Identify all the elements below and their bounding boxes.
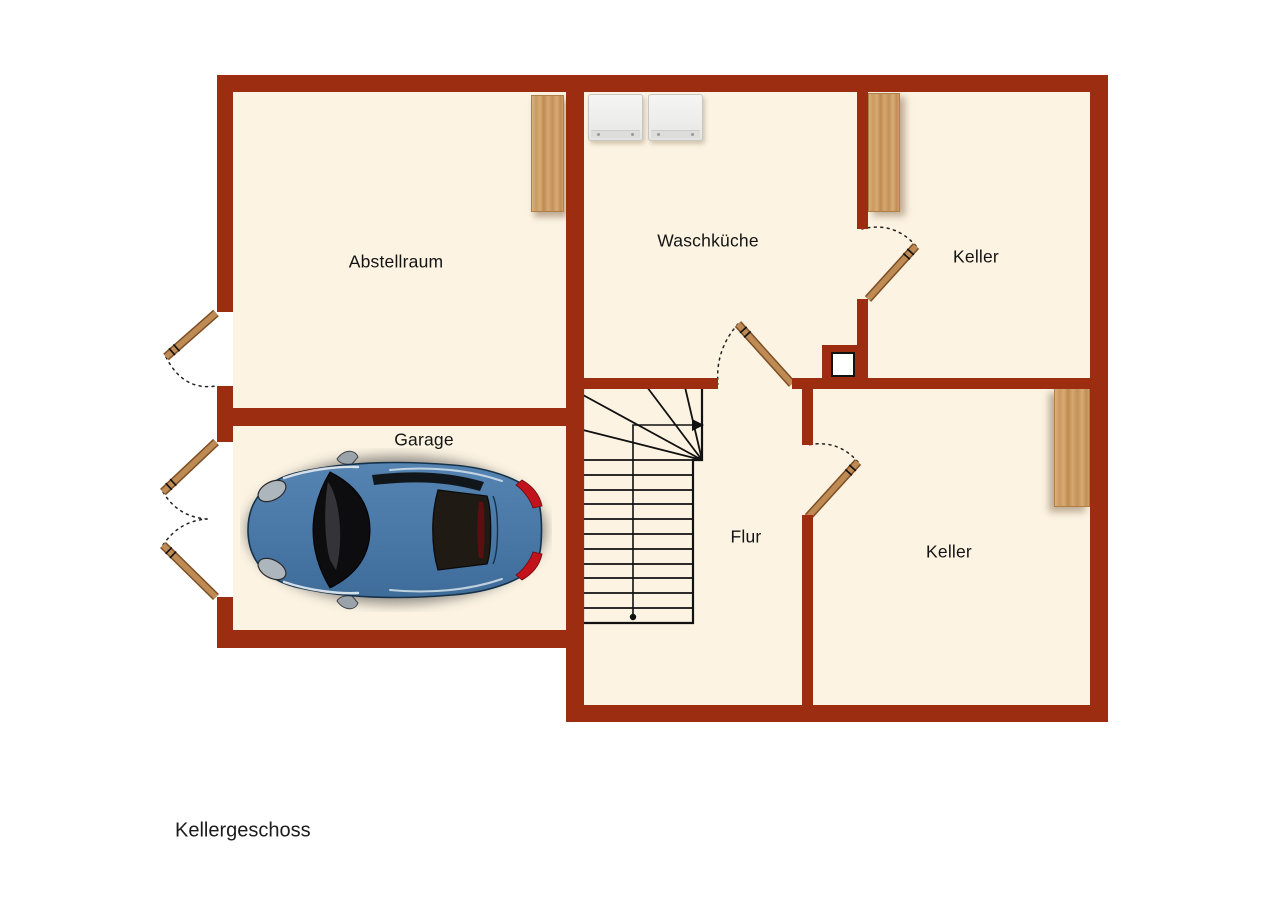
door-leaf [163, 442, 216, 492]
room-label-abstellraum: Abstellraum [349, 252, 444, 273]
washer-knob [597, 133, 600, 136]
door-leaf [163, 545, 216, 597]
door-leaf [166, 313, 216, 357]
door-leaf-edge [163, 545, 216, 597]
wooden-shelf [531, 95, 564, 212]
room-label-waschkueche: Waschküche [657, 231, 759, 252]
door-arc [166, 357, 216, 387]
washer-knob [691, 133, 694, 136]
wall-flur-keller [802, 389, 813, 445]
washer-knob [657, 133, 660, 136]
door-arc [163, 519, 207, 545]
washer-knob [631, 133, 634, 136]
door-arc [163, 492, 207, 519]
wall-central-vertical [566, 92, 584, 705]
basement-floorplan: Abstellraum Waschküche Keller Garage Flu… [0, 0, 1280, 905]
room-label-keller-bottom: Keller [926, 542, 972, 563]
washing-machine [648, 94, 703, 141]
car-top-view [240, 448, 552, 612]
door-leaf-edge [163, 442, 216, 492]
wall-exterior-left [217, 386, 233, 442]
wall-abstellraum-garage [233, 408, 566, 426]
wooden-shelf [868, 93, 900, 212]
door-leaf-edge [166, 313, 216, 357]
car-illustration [240, 448, 552, 612]
room-label-garage: Garage [394, 430, 454, 451]
wall-flur-keller [802, 515, 813, 705]
wall-waschkueche-keller [857, 299, 868, 389]
wooden-shelf [1054, 388, 1090, 507]
wall-garage-bottom [217, 630, 584, 648]
floorplan-page: Abstellraum Waschküche Keller Garage Flu… [0, 0, 1280, 905]
wall-exterior-right [1090, 75, 1108, 722]
wall-exterior-left [217, 92, 233, 312]
wall-exterior-top [217, 75, 1108, 92]
room-label-flur: Flur [731, 527, 762, 548]
wall-waschkueche-flur [584, 378, 718, 389]
chimney-flue [831, 352, 855, 377]
wall-waschkueche-keller [857, 92, 868, 229]
room-label-keller-top: Keller [953, 247, 999, 268]
floor-right-block [584, 92, 1090, 705]
wall-exterior-bottom [566, 705, 1108, 722]
washing-machine [588, 94, 643, 141]
floor-title: Kellergeschoss [175, 820, 311, 843]
rear-window-tint [478, 502, 485, 558]
